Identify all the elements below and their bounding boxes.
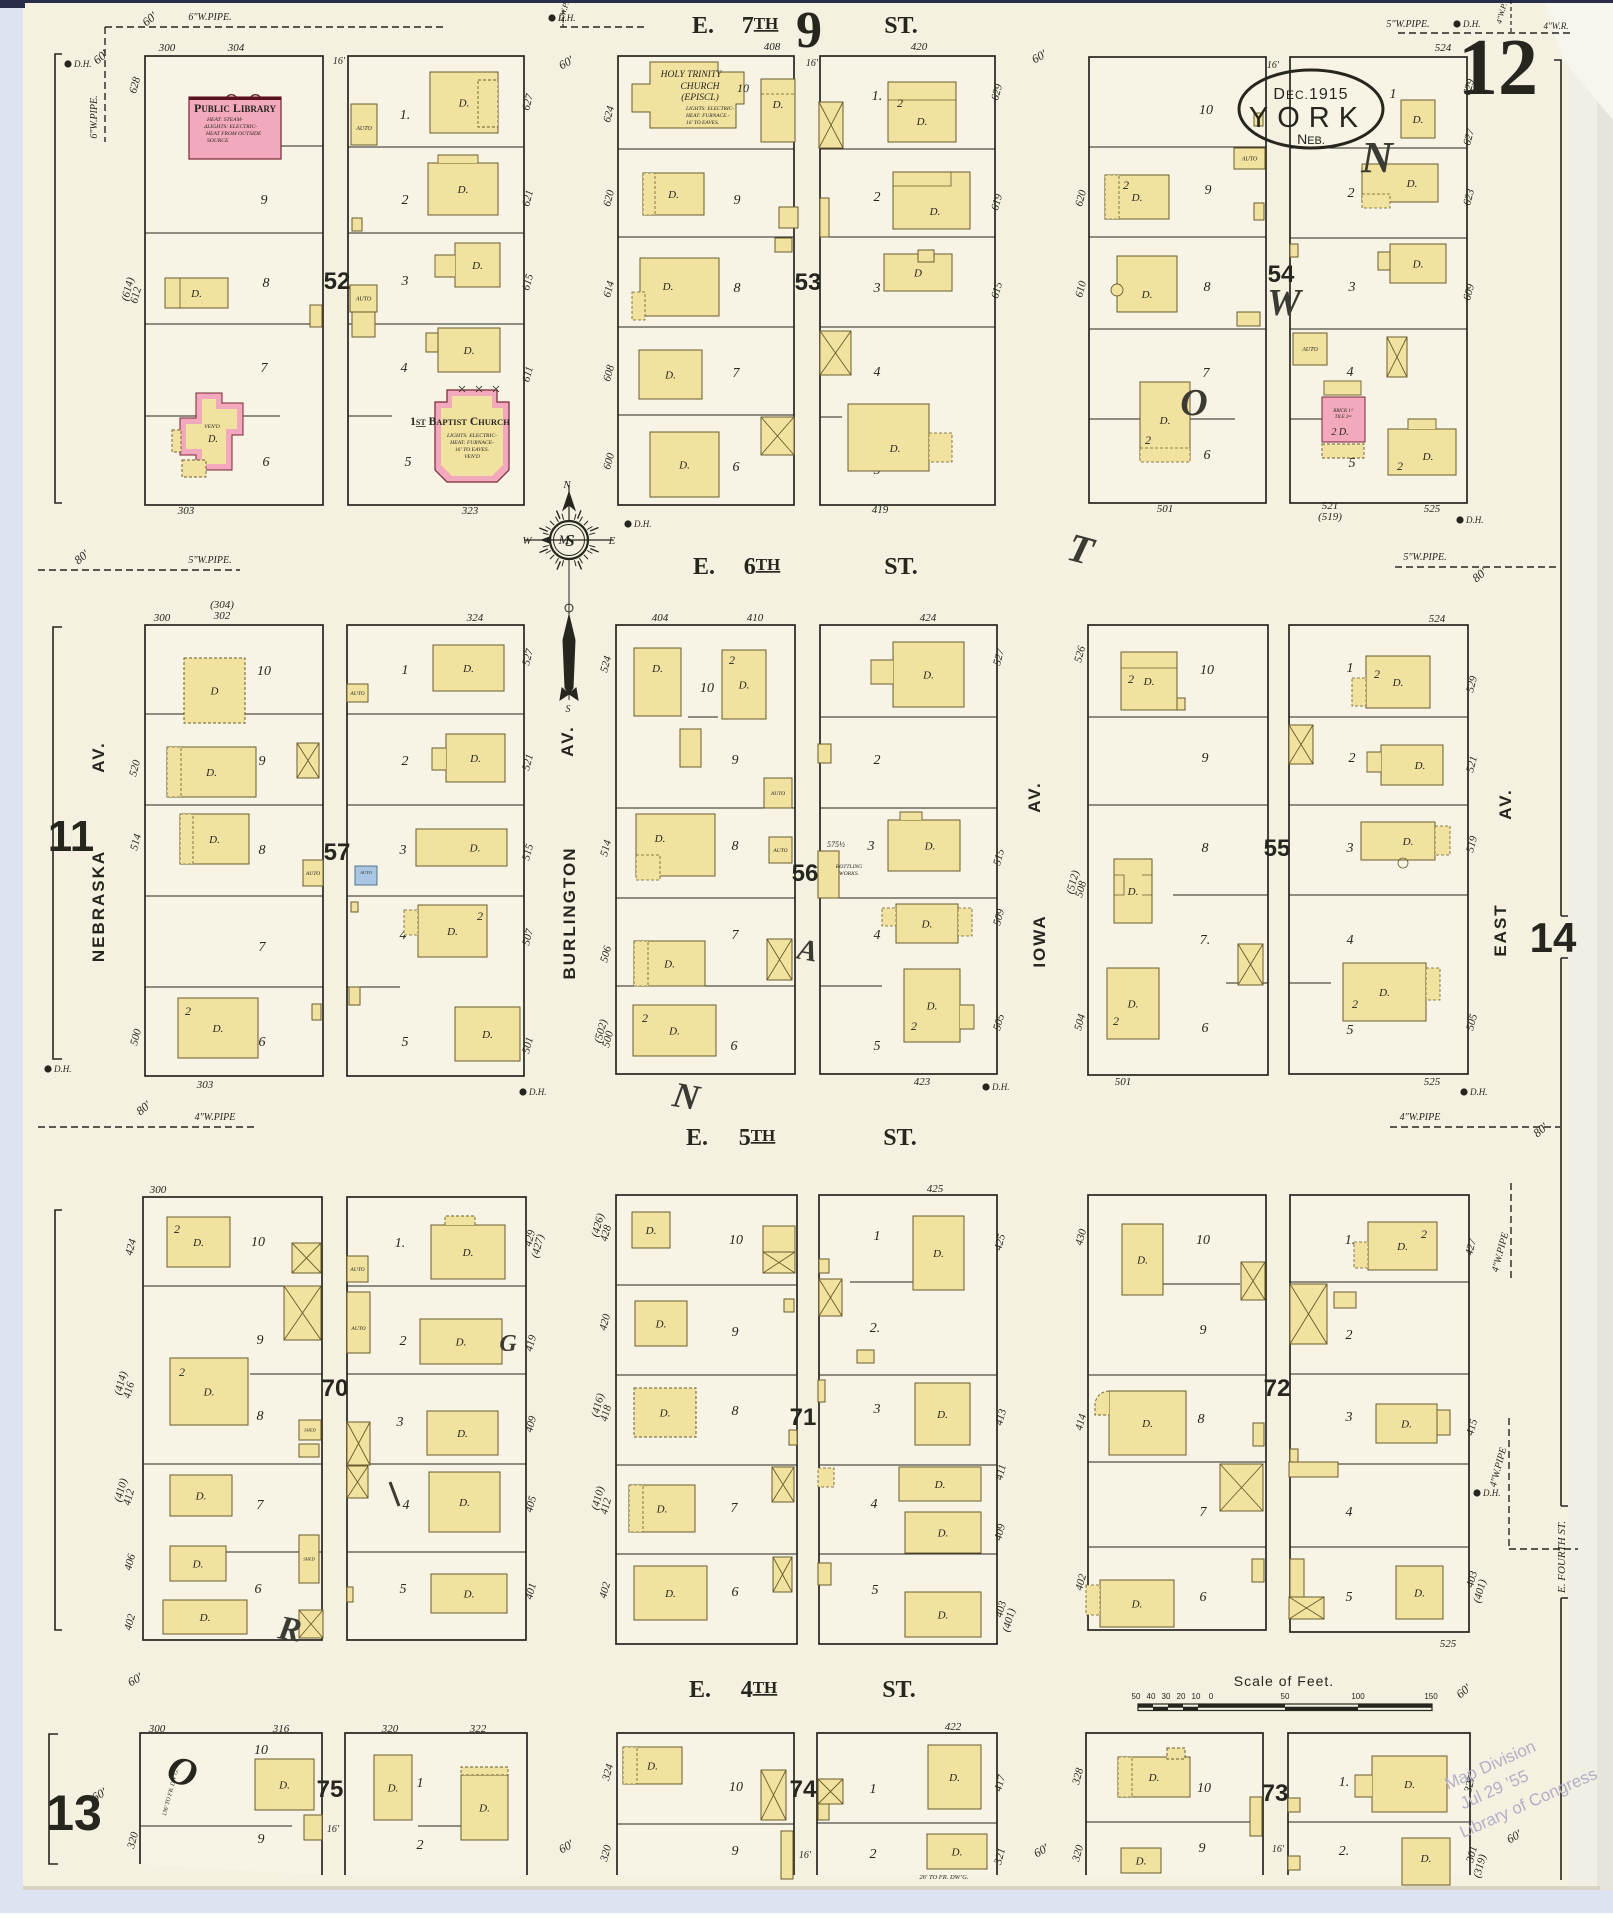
svg-text:D.: D. — [667, 189, 679, 201]
svg-text:7: 7 — [732, 928, 740, 943]
svg-text:EAST: EAST — [1491, 903, 1510, 956]
svg-text:30: 30 — [1162, 1692, 1171, 1701]
svg-text:2: 2 — [642, 1011, 648, 1025]
svg-text:D.: D. — [195, 1490, 207, 1502]
svg-text:16′: 16′ — [333, 56, 346, 67]
svg-text:9: 9 — [732, 1325, 739, 1340]
svg-text:323: 323 — [461, 505, 479, 517]
svg-text:1: 1 — [874, 1229, 881, 1244]
svg-text:40: 40 — [1147, 1692, 1156, 1701]
svg-text:303: 303 — [177, 505, 195, 517]
svg-text:2: 2 — [874, 190, 881, 205]
svg-text:7: 7 — [731, 1501, 739, 1516]
svg-text:8: 8 — [1202, 841, 1209, 856]
svg-text:1: 1 — [1390, 87, 1397, 102]
svg-text:AUTO: AUTO — [355, 126, 372, 132]
svg-text:7: 7 — [733, 366, 741, 381]
svg-text:D.: D. — [469, 842, 481, 854]
svg-text:D.: D. — [1159, 415, 1171, 427]
svg-text:D.: D. — [458, 1497, 470, 1509]
svg-text:8: 8 — [732, 1404, 739, 1419]
svg-text:9: 9 — [261, 193, 268, 208]
svg-text:HEAT: FURNACE.-: HEAT: FURNACE.- — [685, 113, 730, 119]
svg-text:2: 2 — [1397, 459, 1403, 473]
svg-text:D.: D. — [937, 1527, 949, 1539]
svg-text:D.: D. — [668, 1025, 680, 1037]
svg-text:419: 419 — [872, 504, 889, 516]
svg-text:AUTO: AUTO — [770, 791, 785, 797]
svg-text:525: 525 — [1440, 1638, 1457, 1650]
svg-text:2: 2 — [1421, 1227, 1427, 1241]
svg-text:D.: D. — [1406, 178, 1418, 190]
svg-text:AUTO: AUTO — [349, 691, 364, 697]
svg-text:D.: D. — [208, 834, 220, 846]
svg-text:3: 3 — [1348, 280, 1356, 295]
svg-text:N: N — [562, 479, 571, 491]
svg-text:8: 8 — [1198, 1412, 1205, 1427]
svg-text:55: 55 — [1264, 835, 1291, 862]
svg-text:2: 2 — [874, 753, 881, 768]
svg-text:D.: D. — [1420, 1853, 1432, 1865]
svg-text:CHURCH: CHURCH — [680, 82, 720, 92]
svg-text:D.: D. — [663, 958, 675, 970]
svg-text:2: 2 — [911, 1019, 917, 1033]
svg-text:G: G — [499, 1331, 517, 1357]
svg-text:D.: D. — [1422, 451, 1434, 463]
svg-text:8: 8 — [263, 276, 270, 291]
svg-text:D.: D. — [1131, 192, 1143, 204]
svg-text:2: 2 — [1346, 1328, 1353, 1343]
svg-text:5: 5 — [1347, 1023, 1354, 1038]
svg-text:D.: D. — [457, 184, 469, 196]
svg-text:D.: D. — [656, 1503, 668, 1515]
svg-text:LIGHTS: ELECTRIC-: LIGHTS: ELECTRIC- — [685, 106, 734, 112]
svg-text:2: 2 — [1128, 672, 1134, 686]
svg-text:D.: D. — [664, 1588, 676, 1600]
svg-text:D.: D. — [659, 1407, 671, 1419]
svg-text:3: 3 — [873, 281, 881, 296]
svg-text:D.H.: D.H. — [1465, 515, 1484, 525]
svg-text:150: 150 — [1424, 1692, 1438, 1701]
svg-text:9: 9 — [732, 753, 739, 768]
svg-text:W: W — [1267, 282, 1304, 324]
svg-text:D.: D. — [190, 288, 202, 300]
svg-text:HEAT: STEAM-: HEAT: STEAM- — [206, 117, 243, 123]
svg-text:300: 300 — [153, 612, 171, 624]
svg-text:71: 71 — [790, 1404, 817, 1431]
svg-text:9: 9 — [1205, 183, 1212, 198]
svg-text:D.: D. — [662, 281, 674, 293]
svg-text:8: 8 — [1204, 280, 1211, 295]
svg-text:D.: D. — [921, 918, 933, 930]
svg-text:74: 74 — [790, 1776, 817, 1803]
svg-text:9: 9 — [258, 1832, 265, 1847]
svg-text:50: 50 — [1132, 1692, 1141, 1701]
svg-text:ST.: ST. — [884, 13, 918, 39]
svg-text:D.: D. — [205, 767, 217, 779]
svg-text:4: 4 — [874, 365, 881, 380]
svg-text:57: 57 — [324, 839, 351, 866]
svg-text:3: 3 — [1345, 1410, 1353, 1425]
svg-text:ΔLIGHTS: ELECTRIC-: ΔLIGHTS: ELECTRIC- — [203, 124, 257, 130]
svg-text:D.: D. — [1400, 1418, 1412, 1430]
svg-text:1: 1 — [402, 663, 409, 678]
svg-text:D.: D. — [1135, 1855, 1147, 1867]
svg-text:5″W.PIPE.: 5″W.PIPE. — [188, 555, 231, 566]
svg-text:4: 4 — [1346, 1505, 1353, 1520]
svg-text:2: 2 — [1352, 997, 1358, 1011]
svg-text:20: 20 — [1177, 1692, 1186, 1701]
svg-text:D.: D. — [192, 1237, 204, 1249]
svg-text:10: 10 — [729, 1233, 743, 1248]
svg-text:524: 524 — [1435, 42, 1452, 54]
svg-text:BOTTLING: BOTTLING — [836, 864, 862, 870]
svg-text:2: 2 — [729, 653, 735, 667]
svg-text:16′ TO EAVES.: 16′ TO EAVES. — [686, 120, 719, 126]
svg-text:D.: D. — [646, 1760, 658, 1772]
svg-text:9: 9 — [1202, 751, 1209, 766]
svg-text:300: 300 — [158, 42, 176, 54]
svg-text:501: 501 — [1115, 1076, 1132, 1088]
svg-text:16′: 16′ — [1267, 60, 1280, 71]
svg-text:D.H.: D.H. — [528, 1087, 547, 1097]
svg-text:D.: D. — [1412, 258, 1424, 270]
svg-text:575½: 575½ — [827, 840, 845, 849]
svg-text:2: 2 — [400, 1334, 407, 1349]
svg-text:D.: D. — [1136, 1254, 1148, 1266]
svg-text:D: D — [210, 685, 219, 697]
svg-text:316: 316 — [272, 1723, 290, 1735]
svg-text:11: 11 — [48, 812, 95, 861]
svg-text:8: 8 — [734, 281, 741, 296]
svg-text:SHED: SHED — [303, 1557, 315, 1562]
svg-text:10: 10 — [1197, 1781, 1211, 1796]
svg-text:4″W.PIPE: 4″W.PIPE — [1400, 1112, 1441, 1123]
svg-text:D.: D. — [1413, 1587, 1425, 1599]
svg-text:302: 302 — [213, 610, 231, 622]
svg-text:D.: D. — [192, 1558, 204, 1570]
svg-text:16′: 16′ — [327, 1824, 340, 1835]
svg-text:2: 2 — [1348, 186, 1355, 201]
svg-text:6: 6 — [1204, 448, 1211, 463]
svg-text:D.: D. — [916, 116, 928, 128]
svg-text:BRICK 1⁰: BRICK 1⁰ — [1333, 408, 1353, 414]
svg-text:424: 424 — [920, 612, 937, 624]
svg-text:525: 525 — [1424, 503, 1441, 515]
svg-text:5: 5 — [872, 1583, 879, 1598]
svg-text:1: 1 — [1347, 661, 1354, 676]
svg-text:16′: 16′ — [799, 1850, 812, 1861]
svg-text:2: 2 — [402, 193, 409, 208]
svg-text:5: 5 — [1346, 1590, 1353, 1605]
svg-text:D.: D. — [203, 1386, 215, 1398]
svg-text:D.: D. — [926, 1000, 938, 1012]
svg-text:D.: D. — [922, 669, 934, 681]
svg-text:D.: D. — [889, 443, 901, 455]
svg-text:10: 10 — [737, 81, 749, 95]
svg-text:304: 304 — [227, 42, 245, 54]
svg-text:525: 525 — [1424, 1076, 1441, 1088]
svg-text:9: 9 — [732, 1844, 739, 1859]
svg-text:D.H.: D.H. — [991, 1082, 1010, 1092]
svg-text:10: 10 — [254, 1743, 268, 1758]
svg-text:DEC.1915: DEC.1915 — [1273, 86, 1348, 103]
svg-text:D.: D. — [1141, 289, 1153, 301]
svg-text:4: 4 — [403, 1498, 410, 1513]
svg-text:D.H.: D.H. — [1462, 19, 1481, 29]
svg-text:D: D — [913, 267, 922, 279]
svg-text:2: 2 — [417, 1838, 424, 1853]
svg-text:2: 2 — [179, 1365, 185, 1379]
svg-text:6″W.PIPE.: 6″W.PIPE. — [188, 12, 231, 23]
svg-text:AUTO: AUTO — [355, 297, 372, 303]
svg-text:5: 5 — [874, 1039, 881, 1054]
svg-text:1: 1 — [417, 1776, 424, 1791]
svg-text:5: 5 — [402, 1035, 409, 1050]
svg-text:D.: D. — [1131, 1598, 1143, 1610]
svg-text:S: S — [566, 704, 571, 715]
svg-text:D.: D. — [463, 1588, 475, 1600]
svg-text:2.: 2. — [1339, 1844, 1350, 1859]
svg-text:10: 10 — [729, 1780, 743, 1795]
svg-text:2: 2 — [1123, 178, 1129, 192]
svg-text:D.: D. — [212, 1023, 224, 1035]
svg-text:AUTO: AUTO — [772, 848, 787, 854]
svg-text:53: 53 — [795, 269, 822, 296]
svg-text:5: 5 — [405, 455, 412, 470]
svg-text:324: 324 — [466, 612, 484, 624]
svg-text:8: 8 — [257, 1409, 264, 1424]
svg-text:D.: D. — [678, 459, 690, 471]
svg-text:IOWA: IOWA — [1030, 914, 1049, 967]
svg-text:4: 4 — [1347, 933, 1354, 948]
svg-text:9: 9 — [1200, 1323, 1207, 1338]
svg-text:322: 322 — [469, 1723, 487, 1735]
svg-text:D.: D. — [1403, 1779, 1415, 1791]
svg-text:16′: 16′ — [1272, 1844, 1285, 1855]
svg-text:AV.: AV. — [558, 725, 577, 757]
svg-text:2 D.: 2 D. — [1331, 427, 1348, 438]
svg-text:D.: D. — [458, 97, 470, 109]
svg-text:404: 404 — [652, 612, 669, 624]
svg-text:D.: D. — [1396, 1241, 1408, 1253]
svg-text:12: 12 — [1458, 24, 1538, 112]
svg-text:423: 423 — [914, 1076, 931, 1088]
svg-text:1.: 1. — [1339, 1775, 1350, 1790]
svg-text:D.: D. — [1127, 886, 1139, 898]
svg-text:ST.: ST. — [884, 554, 918, 580]
svg-text:ST.: ST. — [882, 1677, 916, 1703]
svg-text:3: 3 — [396, 1415, 404, 1430]
svg-text:D.: D. — [199, 1612, 211, 1624]
svg-text:10: 10 — [1192, 1692, 1201, 1701]
svg-text:100: 100 — [1351, 1692, 1365, 1701]
svg-text:320: 320 — [381, 1723, 399, 1735]
svg-text:D.: D. — [951, 1846, 963, 1858]
svg-text:2: 2 — [402, 754, 409, 769]
svg-text:N: N — [1360, 133, 1395, 182]
svg-text:56: 56 — [792, 860, 819, 887]
svg-text:E.: E. — [693, 554, 715, 580]
svg-text:D.: D. — [1143, 676, 1155, 688]
svg-text:8: 8 — [259, 843, 266, 858]
svg-text:(EPISCL): (EPISCL) — [681, 92, 718, 103]
svg-text:D.: D. — [481, 1029, 493, 1041]
svg-text:D.: D. — [738, 679, 750, 691]
svg-text:501: 501 — [1157, 503, 1174, 515]
svg-text:10: 10 — [1199, 103, 1213, 118]
svg-text:2: 2 — [185, 1004, 191, 1018]
svg-text:72: 72 — [1264, 1375, 1291, 1402]
svg-text:HOLY TRINITY: HOLY TRINITY — [660, 70, 724, 80]
svg-text:SHED: SHED — [304, 1428, 316, 1433]
svg-text:D.: D. — [471, 260, 483, 272]
svg-text:D.: D. — [1402, 836, 1414, 848]
svg-text:10: 10 — [700, 681, 714, 696]
svg-text:4: 4 — [874, 928, 881, 943]
svg-text:1ST BAPTIST CHURCH: 1ST BAPTIST CHURCH — [410, 416, 510, 428]
svg-text:E. FOURTH ST.: E. FOURTH ST. — [1556, 1521, 1568, 1594]
svg-text:D.: D. — [929, 206, 941, 218]
svg-text:3: 3 — [399, 843, 407, 858]
svg-text:D.: D. — [924, 840, 936, 852]
svg-text:WORKS.: WORKS. — [839, 871, 859, 877]
svg-text:10: 10 — [1200, 663, 1214, 678]
svg-text:3: 3 — [867, 839, 875, 854]
svg-text:7.: 7. — [1200, 933, 1211, 948]
svg-text:AUTO: AUTO — [349, 1267, 364, 1273]
svg-text:4″W.PIPE: 4″W.PIPE — [195, 1112, 236, 1123]
svg-text:9: 9 — [257, 1333, 264, 1348]
svg-text:1.: 1. — [400, 108, 411, 123]
svg-text:D.: D. — [934, 1479, 946, 1491]
svg-text:AUTO: AUTO — [1241, 157, 1258, 163]
svg-text:VEN'D: VEN'D — [204, 424, 220, 430]
svg-text:425: 425 — [927, 1183, 944, 1195]
svg-text:E.: E. — [692, 13, 714, 39]
svg-text:3: 3 — [401, 274, 409, 289]
svg-text:9: 9 — [259, 754, 266, 769]
svg-text:1.: 1. — [395, 1236, 406, 1251]
svg-text:1: 1 — [870, 1782, 877, 1797]
svg-text:E.: E. — [689, 1677, 711, 1703]
svg-text:O: O — [1180, 382, 1207, 424]
svg-text:PUBLIC LIBRARY: PUBLIC LIBRARY — [194, 101, 277, 115]
svg-text:2: 2 — [1349, 751, 1356, 766]
svg-text:3: 3 — [1346, 841, 1354, 856]
svg-text:AUTO: AUTO — [1301, 347, 1318, 353]
svg-text:2: 2 — [897, 96, 903, 110]
svg-text:AV.: AV. — [1496, 788, 1515, 820]
svg-text:52: 52 — [324, 268, 351, 295]
svg-text:D.H.: D.H. — [633, 519, 652, 529]
svg-text:2: 2 — [477, 909, 483, 923]
svg-text:2: 2 — [870, 1847, 877, 1862]
svg-text:5″W.PIPE.: 5″W.PIPE. — [1386, 19, 1429, 30]
svg-text:HEAT FROM OUTSIDE: HEAT FROM OUTSIDE — [205, 131, 262, 137]
svg-text:6: 6 — [731, 1039, 738, 1054]
svg-text:2: 2 — [1113, 1014, 1119, 1028]
svg-text:524: 524 — [1429, 613, 1446, 625]
svg-text:Scale of Feet.: Scale of Feet. — [1234, 1673, 1334, 1689]
svg-text:0: 0 — [1209, 1692, 1214, 1701]
svg-text:5: 5 — [400, 1582, 407, 1597]
svg-text:SOURCE: SOURCE — [207, 138, 229, 144]
svg-text:14: 14 — [1530, 914, 1577, 961]
svg-text:5″W.PIPE.: 5″W.PIPE. — [1403, 552, 1446, 563]
svg-text:LIGHTS: ELECTRIC-: LIGHTS: ELECTRIC- — [446, 433, 497, 439]
svg-text:D.: D. — [1378, 987, 1390, 999]
svg-text:D.: D. — [207, 434, 218, 445]
svg-text:D.: D. — [651, 663, 663, 675]
svg-text:D.: D. — [772, 99, 784, 111]
svg-text:7: 7 — [1200, 1505, 1208, 1520]
svg-text:6: 6 — [255, 1582, 262, 1597]
svg-text:4: 4 — [871, 1497, 878, 1512]
svg-text:D.: D. — [654, 833, 666, 845]
svg-text:4″W.R.: 4″W.R. — [1544, 21, 1569, 31]
svg-text:D.: D. — [278, 1779, 290, 1791]
svg-text:D.: D. — [932, 1248, 944, 1260]
svg-text:D.: D. — [1141, 1418, 1153, 1430]
svg-text:6: 6 — [259, 1035, 266, 1050]
svg-text:AV.: AV. — [89, 741, 108, 773]
svg-text:10: 10 — [257, 664, 271, 679]
svg-text:D.: D. — [387, 1782, 399, 1794]
svg-text:D.: D. — [645, 1225, 657, 1237]
svg-text:D.: D. — [462, 663, 474, 675]
svg-text:D.H.: D.H. — [1482, 1488, 1501, 1498]
svg-text:10: 10 — [251, 1235, 265, 1250]
svg-text:7: 7 — [257, 1498, 265, 1513]
svg-text:420: 420 — [911, 41, 928, 53]
svg-text:2: 2 — [174, 1222, 180, 1236]
svg-text:D.: D. — [655, 1318, 667, 1330]
svg-text:9: 9 — [1199, 1841, 1206, 1856]
svg-text:6: 6 — [732, 1585, 739, 1600]
svg-text:D.: D. — [1127, 998, 1139, 1010]
svg-text:YORK: YORK — [1249, 102, 1367, 134]
svg-text:D.: D. — [446, 926, 458, 938]
svg-text:408: 408 — [764, 41, 781, 53]
svg-text:6: 6 — [1202, 1021, 1209, 1036]
svg-text:D.: D. — [1414, 760, 1426, 772]
svg-text:4: 4 — [401, 361, 408, 376]
svg-text:M: M — [558, 532, 571, 547]
svg-text:2: 2 — [1145, 433, 1151, 447]
svg-text:6″W.PIPE.: 6″W.PIPE. — [89, 95, 100, 138]
svg-text:D.H.: D.H. — [1469, 1087, 1488, 1097]
svg-text:D.: D. — [1412, 114, 1424, 126]
svg-text:D.: D. — [462, 1247, 474, 1259]
svg-text:NEBRASKA: NEBRASKA — [89, 850, 108, 962]
svg-text:6: 6 — [733, 460, 740, 475]
svg-text:50: 50 — [1281, 1692, 1290, 1701]
svg-text:D.: D. — [1148, 1772, 1160, 1784]
svg-text:VEN'D: VEN'D — [464, 454, 480, 460]
svg-text:8: 8 — [732, 839, 739, 854]
svg-text:D.: D. — [455, 1336, 467, 1348]
svg-text:2: 2 — [1374, 667, 1380, 681]
svg-text:E: E — [608, 535, 616, 547]
svg-text:2.: 2. — [870, 1321, 881, 1336]
svg-text:10: 10 — [1196, 1233, 1210, 1248]
svg-text:16′: 16′ — [806, 58, 819, 69]
svg-text:300: 300 — [148, 1723, 166, 1735]
svg-text:D.: D. — [664, 369, 676, 381]
svg-text:(519): (519) — [1318, 511, 1342, 523]
svg-text:300: 300 — [149, 1184, 167, 1196]
